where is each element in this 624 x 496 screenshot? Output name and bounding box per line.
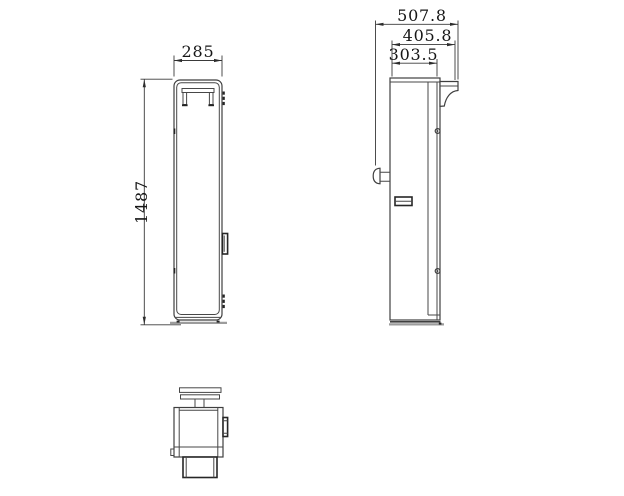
engineering-drawing: 285 1487: [0, 0, 624, 496]
dimension-label-285: 285: [182, 42, 215, 61]
side-foot: [439, 323, 442, 325]
arrowhead-bottom: [143, 317, 146, 325]
bracket-bar-outer: [180, 388, 222, 393]
dimension-label-405-8: 405.8: [403, 26, 453, 45]
dimension-label-507-8: 507.8: [397, 6, 447, 25]
body-outline: [174, 408, 223, 458]
mounting-hook: [440, 82, 458, 107]
lock-knob: [373, 168, 390, 184]
door-handle: [222, 234, 227, 255]
door-seam-tick-bottom: [174, 268, 176, 274]
front-view: [170, 80, 228, 323]
drawing-canvas: 285 1487: [0, 0, 624, 496]
left-notch: [171, 449, 174, 456]
cabinet-outer-shell: [174, 80, 222, 320]
dimension-front-width: 285: [174, 42, 222, 77]
base-block: [183, 457, 217, 478]
door-seam-tick-top: [174, 129, 176, 135]
vent-slot: [395, 197, 412, 206]
dimension-label-1487: 1487: [132, 180, 151, 224]
hinge-marks-bottom: [223, 295, 225, 309]
foot-left: [177, 321, 180, 323]
handle-top-view: [223, 418, 228, 437]
arrowhead-left: [376, 23, 384, 26]
foot-right: [217, 321, 220, 323]
hinge-marks-top: [223, 92, 225, 106]
side-view: [373, 78, 458, 325]
dimension-side-body-depth: 303.5: [389, 45, 439, 77]
dimension-label-303-5: 303.5: [389, 45, 439, 64]
arrowhead-right: [214, 59, 222, 62]
bracket-stem: [195, 399, 204, 408]
bracket-bar-inner: [181, 395, 220, 399]
top-view: [171, 388, 228, 478]
arrowhead-top: [143, 79, 146, 87]
